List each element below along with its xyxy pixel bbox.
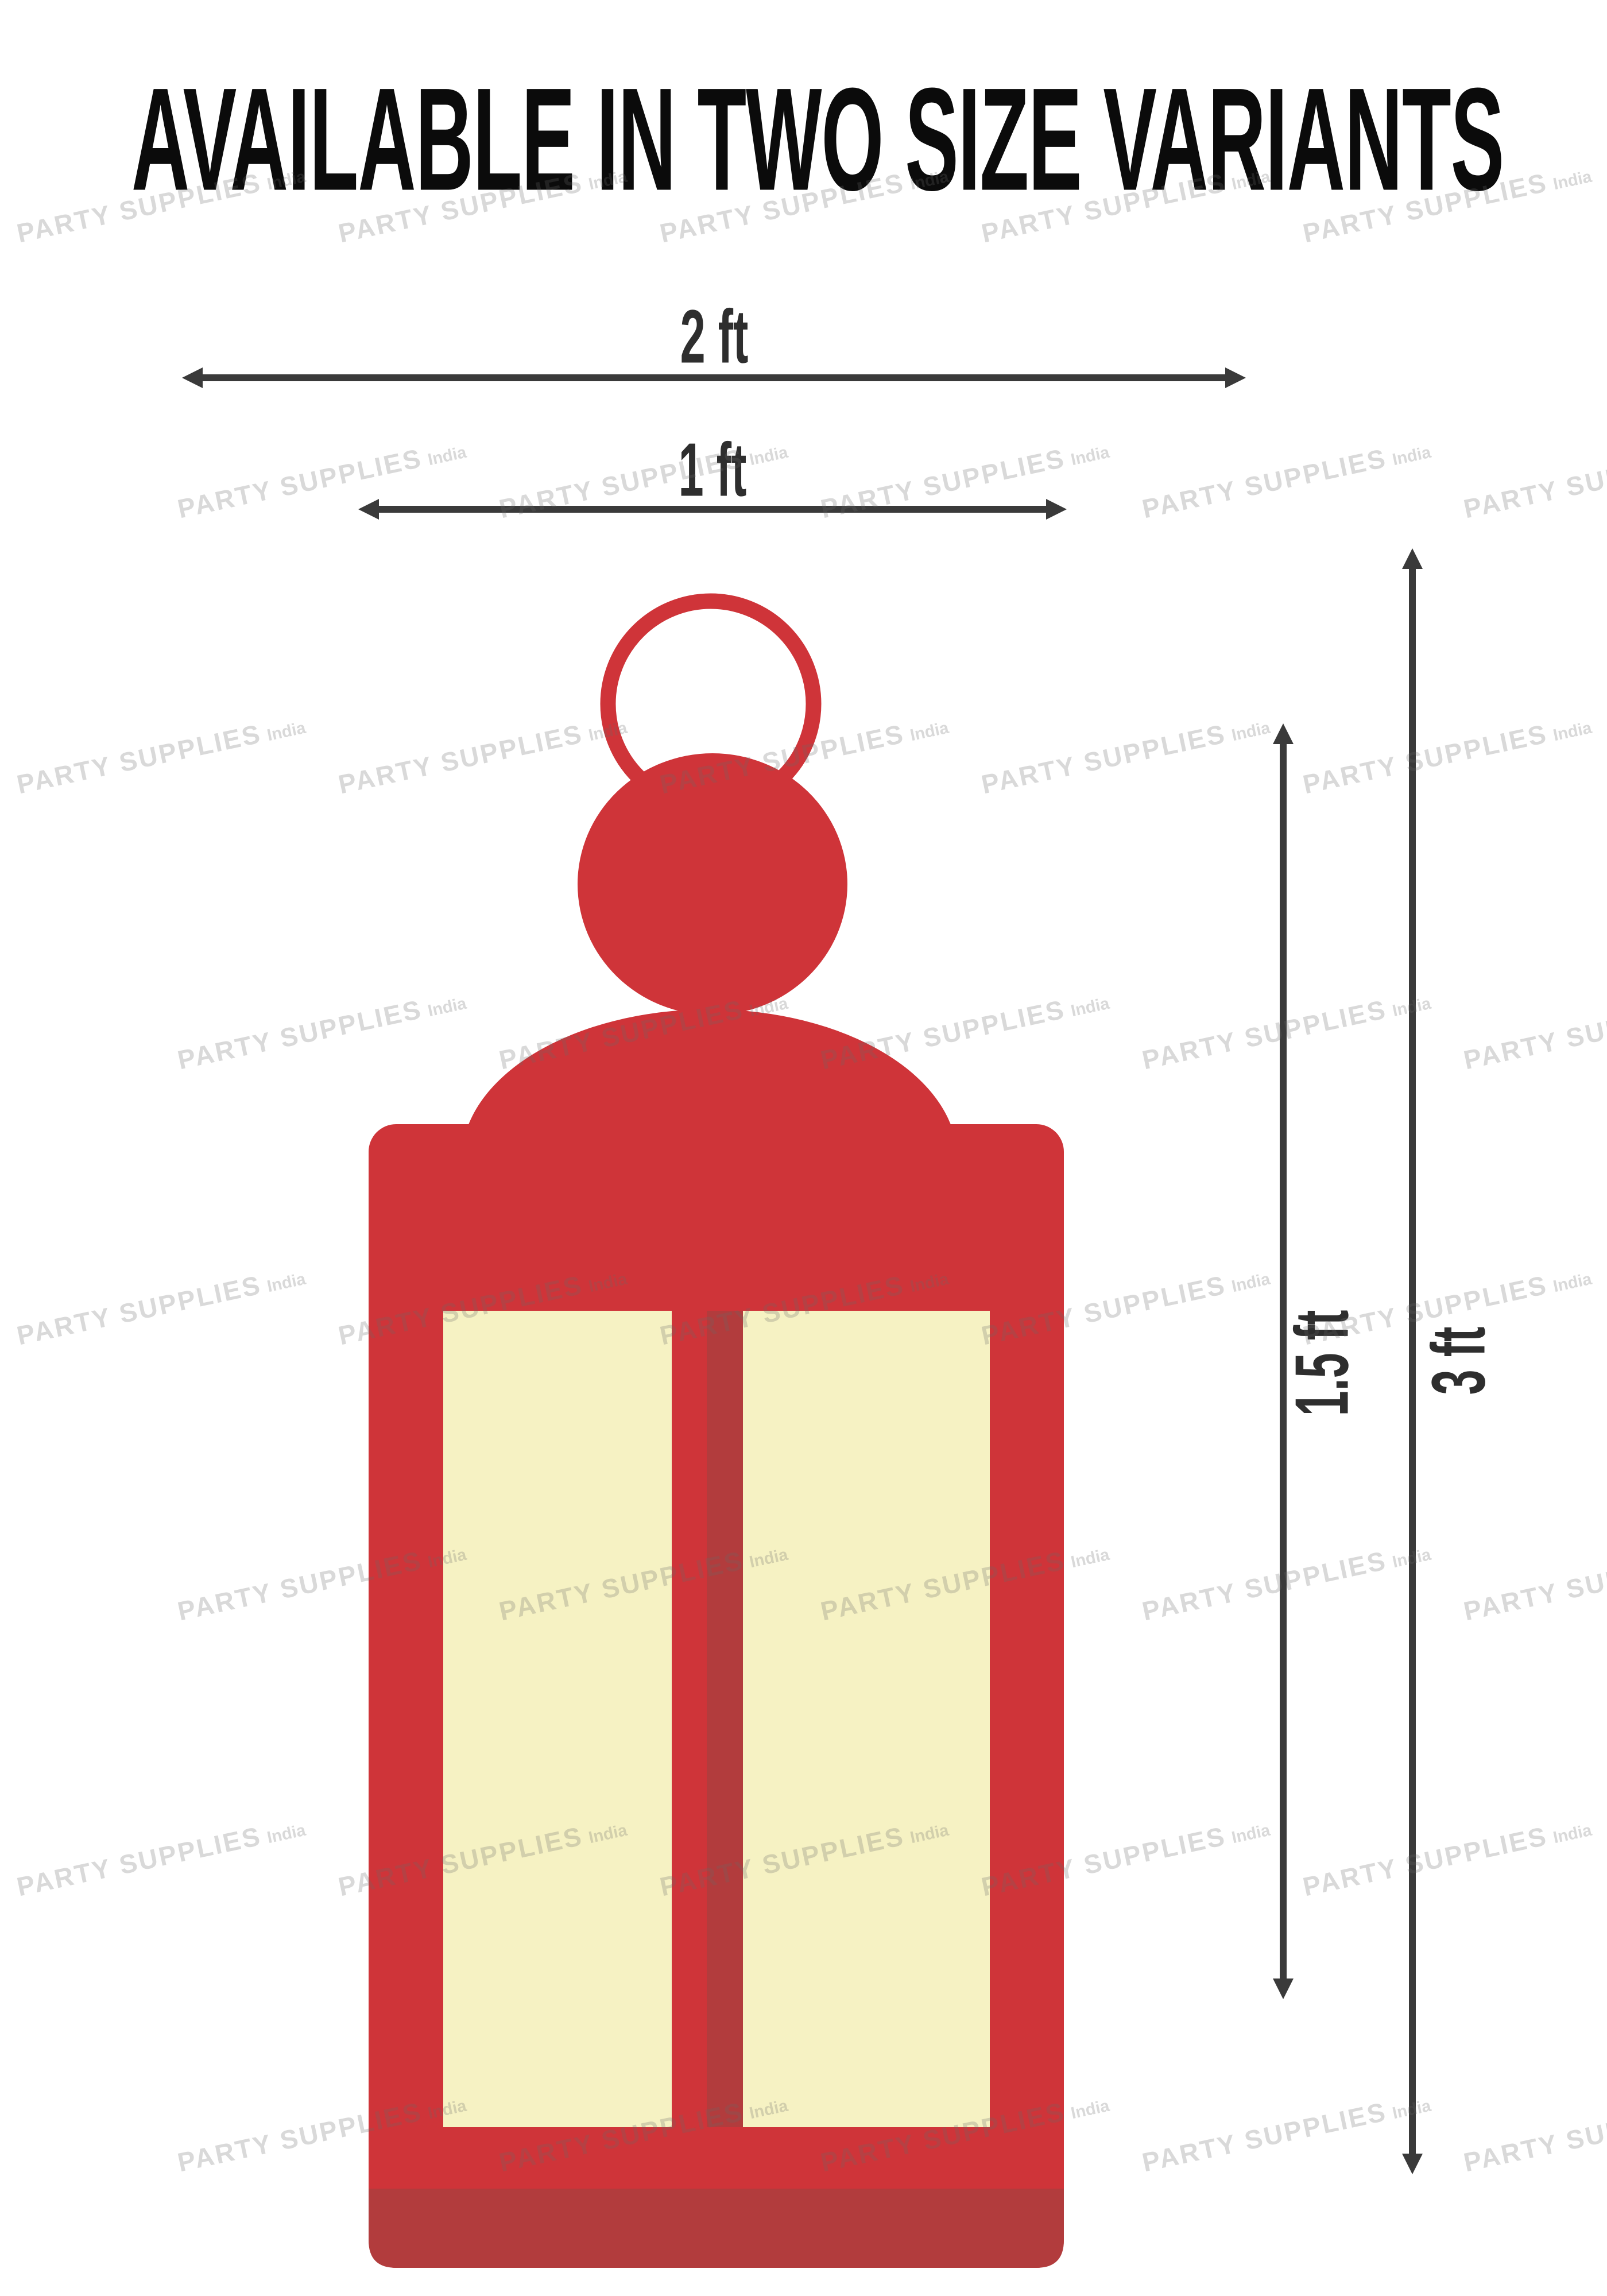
size-chart-canvas: AVAILABLE IN TWO SIZE VARIANTS 2 ft 1 ft… (0, 0, 1607, 2296)
arrowhead-up-icon (1273, 723, 1294, 744)
lantern-panel-right (743, 1311, 990, 2127)
lantern-panel-left (443, 1311, 672, 2127)
arrowhead-up-icon (1402, 548, 1423, 569)
arrowhead-down-icon (1402, 2154, 1423, 2174)
lantern-diagram (0, 0, 1607, 2296)
lantern-knob-circle (578, 753, 847, 1015)
lantern-base-band (369, 2189, 1064, 2268)
height-label-3ft-text: 3 ft (1415, 1327, 1502, 1395)
arrowhead-left-icon (358, 499, 379, 520)
lantern-illustration (369, 601, 1064, 2268)
arrowhead-right-icon (1225, 367, 1246, 388)
width-label-1ft-text: 1 ft (679, 427, 747, 513)
page-title-text: AVAILABLE IN TWO SIZE VARIANTS (131, 56, 1504, 224)
arrowhead-down-icon (1273, 1978, 1294, 1999)
arrowhead-right-icon (1046, 499, 1067, 520)
height-label-1-5ft-text: 1.5 ft (1279, 1310, 1365, 1416)
width-label-2ft-text: 2 ft (680, 293, 749, 380)
arrowhead-left-icon (182, 367, 203, 388)
lantern-divider-shadow (707, 1311, 743, 2127)
